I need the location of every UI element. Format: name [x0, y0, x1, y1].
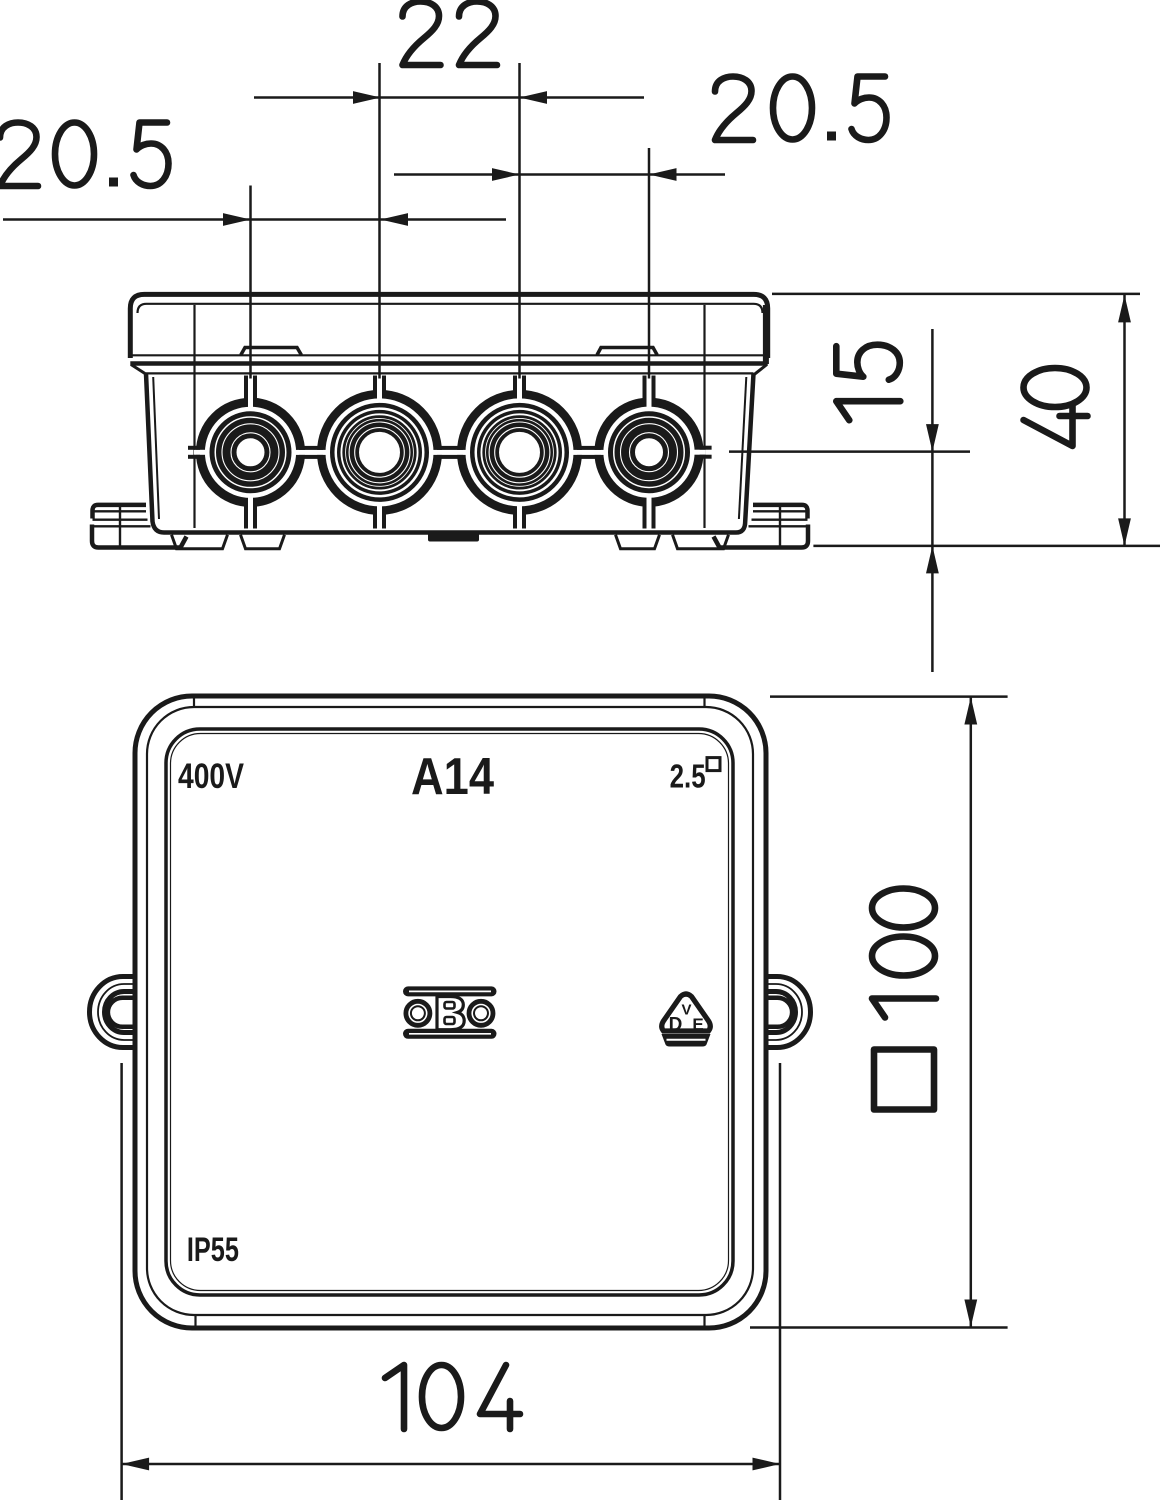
svg-text:E: E	[692, 1015, 703, 1034]
svg-text:2.5: 2.5	[670, 758, 706, 795]
svg-text:V: V	[681, 1002, 691, 1019]
svg-text:IP55: IP55	[187, 1231, 239, 1269]
svg-text:D: D	[669, 1015, 683, 1036]
svg-text:400V: 400V	[178, 757, 245, 796]
svg-text:A14: A14	[411, 748, 494, 806]
